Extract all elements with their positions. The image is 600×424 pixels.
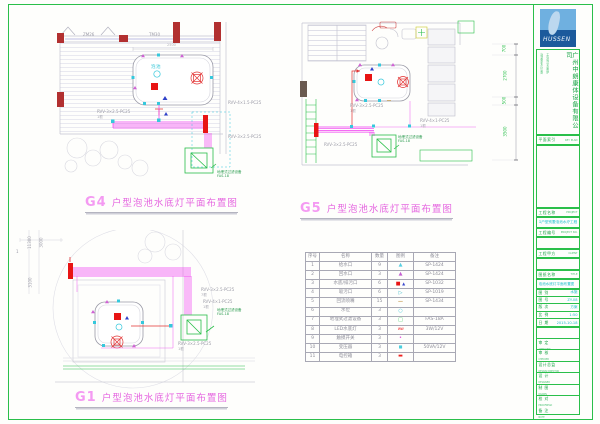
legend-row: 4吸污口6▷SP-1019 [306,289,456,298]
cell-qty: 3 [372,307,388,316]
cell-qty: 3 [372,334,388,343]
g4-cable3-text: RVV-3×2.5-PC25 [228,134,261,139]
cell-no: 9 [306,334,320,343]
info-row-number: 图 号 ZY-08 [536,297,580,305]
g5-cable2-text: RVV-4×1-PC25 [420,118,449,123]
field-label-cn: 图纸名称 [539,272,556,278]
cell-remark: SP-1424 [414,271,456,280]
company-tagline-2: 工程设计安装维护 [545,53,549,133]
g1-plan-title: G1 户型泡池水底灯平面布置图 [75,386,228,408]
legend-row: 2回水口3▲SP-1424 [306,271,456,280]
legend-row: 3水底/排污口6■ ▲SP-1032 [306,280,456,289]
g4-trees [65,138,148,176]
cell-no: 3 [306,280,320,289]
g5-cable1-count: 1根 [350,109,383,113]
cell-remark: SP-1032 [414,280,456,289]
sheet-title-value: 泡池水底灯平面布置图 [536,279,580,289]
cell-name: 回水口 [320,271,372,280]
info-row-type: 图 别 水施 [536,289,580,297]
cell-qty: 3 [372,353,388,362]
cell-remark: SP-1424 [414,262,456,271]
g4-title-code: G4 [85,195,107,210]
g5-plan-title: G5 户型泡池水底灯平面布置图 [300,197,453,219]
g1-axis-mark: 1 [16,250,19,255]
cell-qty: 6 [372,289,388,298]
g5-dim-2700: 2700 [503,70,508,80]
g4-filter-note: 地埋式过滤设备 FAS-18 [217,170,242,179]
info-row-revision: 版 次 方案 [536,304,580,312]
g1-cable-label-3: RVV-3×2.5-PC25 1根 [178,342,211,351]
cell-remark: SP-1434 [414,298,456,307]
cell-remark [414,353,456,362]
cell-qty: 15 [372,298,388,307]
client-header: 工程甲方 CLIENT [536,249,580,258]
g4-pool-label: 泡池 [151,64,161,70]
g4-cable2-text: RVV-4×1.5-PC25 [228,100,261,105]
g5-skylight [416,27,427,38]
g5-cabinets [428,29,455,116]
legend-row: 8LED水底灯3ww3W/12V [306,325,456,334]
cell-qty: 3 [372,343,388,352]
legend-symbol: ▲ [399,271,403,277]
cell-remark: FAS-18A [414,316,456,325]
g5-filter-box [372,135,399,157]
cell-qty: 6 [372,280,388,289]
g4-plan-title: G4 户型泡池水底灯平面布置图 [85,191,238,213]
staff-row-checked: 审 核 CHECKED [536,339,580,351]
g4-cable1-count: 1根 [97,115,130,119]
g4-title-text: 户型泡池水底灯平面布置图 [112,198,238,209]
g4-cable-label-3: RVV-3×2.5-PC25 [228,135,261,140]
g5-filter-note: 地埋式过滤设备 FAS-18 [398,135,423,144]
cell-qty: 3 [372,271,388,280]
field-label-cn: 工程名称 [539,210,556,216]
field-label-cn: 工程编号 [539,230,556,236]
g5-geometry [290,15,485,177]
g4-geometry [45,22,243,180]
staff-row-drawn: 制 图 DRAWN [536,373,580,385]
sheet-title-header: 图纸名称 TITLE [536,270,580,279]
g1-dim-3000: 3000 [39,237,44,247]
company-logo: HUSSEN [540,9,576,47]
g4-pool [133,47,213,105]
legend-header-symbol: 图例 [388,253,414,262]
legend-row: 6水位3○ [306,307,456,316]
g4-note-line2: FAS-18 [217,174,229,178]
g5-dim-700: 700 [501,45,506,53]
g5-dimension-column: 700 2700 500 3500 [492,32,524,172]
legend-row: 10变压器3■50VA/12V [306,343,456,352]
sheet-title-text: 泡池水底灯平面布置图 [539,282,575,287]
cell-no: 2 [306,271,320,280]
cell-name: 电控箱 [320,353,372,362]
legend-header-qty: 数量 [372,253,388,262]
company-name: 广州中朗康体设备有限公司 [565,52,577,134]
legend-symbol: ww [398,326,404,331]
staff-label-en: NOTE [539,416,578,419]
g1-cable1-count: 7根 [201,293,234,297]
g5-kitchen-fixtures [376,29,416,49]
company-tagline-1: 泳池桑拿水疗设备 [539,53,543,133]
plan-g5: RVV-3×2.5-PC25 1根 RVV-4×1-PC25 1根 RVV-3×… [290,15,485,177]
field-label-en: CLIENT [568,252,577,255]
staff-row-proofread: 校 对 PROOFREAD [536,385,580,397]
plan-g1: 11300 3000 3100 1 RVV-3×2.5-PC25 7根 RVV-… [15,230,255,390]
legend-header-row: 序号 名称 数量 图例 备注 [306,253,456,262]
keyplan-area [536,145,580,208]
g5-cable-label-2: RVV-4×1-PC25 1根 [420,119,449,128]
legend-symbol: ○ [398,308,402,314]
legend-row: 5回流喷嘴15—SP-1434 [306,298,456,307]
legend-row: 9触摸开关3• [306,334,456,343]
field-label-en: PROJECT NO. [561,231,578,234]
legend-row: 7地埋式过滤设备3□FAS-18A [306,316,456,325]
cell-name: 地埋式过滤设备 [320,316,372,325]
g4-cable-label-1: RVV-3×2.5-PC25 1根 [97,110,130,119]
staff-row-approved: 审 定 APPROVED [536,327,580,339]
g5-cable1-text: RVV-3×2.5-PC25 [350,103,383,108]
info-label: 图 别 [539,290,549,296]
g1-cable2-text: RVV-4×1-PC25 [203,299,232,304]
cell-remark: 50VA/12V [414,343,456,352]
legend-table: 序号 名称 数量 图例 备注 1给水口9▲SP-1424 2回水口3▲SP-14… [305,252,456,362]
g1-green-lines [63,366,245,369]
info-value: 水施 [570,290,577,295]
g4-filter-box [185,148,216,173]
g4-door-tag: ZM26 [83,33,94,38]
g4-pool-dim: 2500 [167,43,176,47]
legend-header-remark: 备注 [414,253,456,262]
g5-cable-label-1: RVV-3×2.5-PC25 1根 [350,104,383,113]
staff-label-cn: 备 注 [539,408,549,413]
cell-no: 10 [306,343,320,352]
staff-row-designed: 设 计 DESIGNED [536,362,580,374]
keyplan-label-cn: 平面索引 [539,137,556,143]
title-block: HUSSEN 泳池桑拿水疗设备 工程设计安装维护 广州中朗康体设备有限公司 平面… [533,4,583,419]
field-label-cn: 工程甲方 [539,251,556,257]
field-label-en: TITLE [570,273,577,276]
staff-row-design-director: 设计总监 DESIGN DIRECTOR [536,350,580,362]
g5-cable3-text: RVV-3×2.5-PC25 [324,142,357,147]
g1-dim-11300: 11300 [27,236,32,249]
legend-symbol: ■ [399,344,403,349]
cell-qty: 9 [372,262,388,271]
legend-symbol: ■ ▲ [396,281,405,287]
g5-pier [300,81,307,97]
legend-symbol: □ [398,317,403,323]
legend-symbol: ▬ [398,353,403,359]
client-value [536,258,580,270]
logo-swoosh-icon [547,10,562,36]
g1-filter-note: 地埋式过滤设备 FAS-18 [217,308,242,317]
legend-header-name: 名称 [320,253,372,262]
legend-row: 1给水口9▲SP-1424 [306,262,456,271]
cell-remark [414,334,456,343]
g4-window-tag: TM30 [149,33,160,38]
cell-no: 7 [306,316,320,325]
cell-no: 6 [306,307,320,316]
g1-note-line2: FAS-18 [217,312,229,316]
g5-dim-500: 500 [501,97,506,105]
keyplan-header: 平面索引 KEY PLAN [536,135,580,145]
staff-row-note: 备 注 NOTE [536,396,580,415]
project-name-text: G户型别墅泡池水疗工程 [539,220,578,225]
legend-row: 11电控箱3▬ [306,353,456,362]
g1-cable3-text: RVV-3×2.5-PC25 [178,341,211,346]
g5-cable2-count: 1根 [420,124,449,128]
cad-drawing-sheet: ZM26 TM30 泡池 2500 RVV-3×2.5-PC25 1根 RVV-… [0,0,600,424]
g1-cable3-count: 1根 [178,347,211,351]
cell-name: 水位 [320,307,372,316]
legend-symbol: — [398,299,403,305]
project-name-value: G户型别墅泡池水疗工程 [536,217,580,228]
cell-remark: SP-1019 [414,289,456,298]
g1-title-text: 户型泡池水底灯平面布置图 [102,393,228,404]
g1-cable-label-1: RVV-3×2.5-PC25 7根 [201,288,234,297]
project-no-value [536,237,580,249]
cell-no: 8 [306,325,320,334]
g1-dim-3100: 3100 [28,277,33,287]
g5-note-line2: FAS-18 [398,139,410,143]
info-row-date: 日 期 2015-10-18 [536,319,580,327]
info-value: 2015-10-18 [557,321,578,325]
company-block: 泳池桑拿水疗设备 工程设计安装维护 广州中朗康体设备有限公司 [536,49,580,135]
g1-filter-box [181,315,214,340]
cell-qty: 3 [372,316,388,325]
project-name-header: 工程名称 PROJECT [536,208,580,217]
info-label: 日 期 [539,320,549,326]
legend-symbol: ▷ [399,290,403,296]
g4-cable1-text: RVV-3×2.5-PC25 [97,109,130,114]
info-row-scale: 比 例 1:50 [536,312,580,320]
cell-no: 4 [306,289,320,298]
cell-no: 5 [306,298,320,307]
cell-name: 回流喷嘴 [320,298,372,307]
field-label-en: PROJECT [566,211,577,214]
g5-title-text: 户型泡池水底灯平面布置图 [327,204,453,215]
g5-green-planter [420,150,472,161]
cell-no: 1 [306,262,320,271]
cell-qty: 3 [372,325,388,334]
cell-name: LED水底灯 [320,325,372,334]
logo-wordmark: HUSSEN [543,36,571,43]
plan-g4: ZM26 TM30 泡池 2500 RVV-3×2.5-PC25 1根 RVV-… [45,22,243,180]
g5-dim-3500: 3500 [503,126,508,136]
info-label: 图 号 [539,297,549,303]
info-label: 比 例 [539,312,549,318]
g5-green-corner [458,21,474,33]
g1-title-code: G1 [75,390,97,405]
cell-name: 触摸开关 [320,334,372,343]
keyplan-label-en: KEY PLAN [565,139,578,142]
cell-name: 水底/排污口 [320,280,372,289]
g4-cable-label-2: RVV-4×1.5-PC25 [228,101,261,106]
legend-header-no: 序号 [306,253,320,262]
g1-trees [138,232,181,263]
info-value: 方案 [570,305,577,310]
cell-name: 吸污口 [320,289,372,298]
info-label: 版 次 [539,304,549,310]
cell-no: 11 [306,353,320,362]
cell-remark [414,307,456,316]
legend-symbol: • [399,335,402,341]
g5-title-code: G5 [300,201,322,216]
legend-symbol: ▲ [399,262,403,268]
cell-name: 变压器 [320,343,372,352]
g5-cable-label-3: RVV-3×2.5-PC25 [324,143,357,148]
info-value: 1:50 [569,313,577,317]
cell-remark: 3W/12V [414,325,456,334]
info-value: ZY-08 [567,298,577,302]
g1-cable1-text: RVV-3×2.5-PC25 [201,287,234,292]
project-no-header: 工程编号 PROJECT NO. [536,228,580,237]
g5-dim-geometry [492,32,524,172]
g1-deck-edge [63,358,255,361]
cell-name: 给水口 [320,262,372,271]
